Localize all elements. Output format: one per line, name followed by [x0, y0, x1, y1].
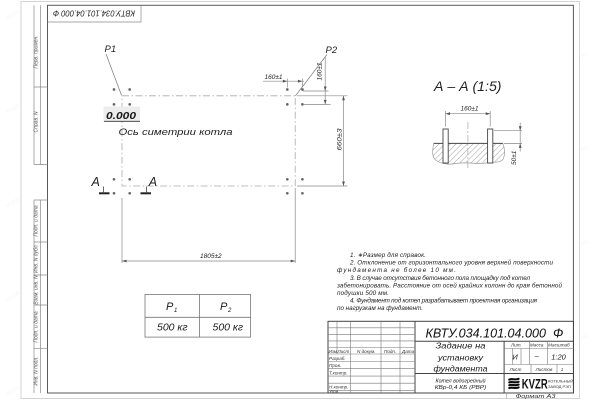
svg-text:50±1: 50±1: [511, 150, 518, 165]
svg-text:Лист: Лист: [337, 349, 350, 354]
svg-text:500 кг: 500 кг: [213, 322, 244, 334]
svg-text:забетонировать. Расстояние от: забетонировать. Расстояние от осей крайн…: [336, 281, 562, 289]
svg-text:4. Фундамент под котел разраба: 4. Фундамент под котел разрабатывает про…: [350, 297, 538, 305]
svg-text:Подп. и дата: Подп. и дата: [34, 205, 40, 237]
svg-text:Масштаб: Масштаб: [548, 342, 570, 347]
svg-text:1:20: 1:20: [551, 353, 566, 362]
svg-text:Т.контр.: Т.контр.: [329, 370, 348, 375]
svg-text:КВТУ.034.101.04.000 Ф: КВТУ.034.101.04.000 Ф: [52, 9, 135, 18]
svg-text:Взам. инв. N: Взам. инв. N: [34, 275, 40, 305]
svg-text:Масса: Масса: [530, 342, 544, 347]
svg-text:ЗАВОД РЭП: ЗАВОД РЭП: [548, 384, 571, 389]
svg-text:Лит.: Лит.: [510, 342, 522, 347]
svg-text:Лист: Лист: [509, 367, 522, 372]
svg-text:N докум.: N докум.: [357, 349, 376, 354]
svg-text:160±1: 160±1: [317, 62, 324, 80]
svg-text:1: 1: [561, 367, 564, 372]
svg-text:Ф: Ф: [553, 326, 563, 341]
svg-text:A: A: [91, 175, 100, 189]
svg-text:660±3: 660±3: [337, 128, 344, 150]
svg-text:КВр-0,4 КБ (РВР): КВр-0,4 КБ (РВР): [435, 385, 487, 391]
svg-text:Ось симетрии котла: Ось симетрии котла: [119, 127, 233, 138]
svg-text:Дата: Дата: [401, 349, 415, 354]
svg-text:Инв. N дубл.: Инв. N дубл.: [34, 244, 40, 273]
svg-text:3. В случае отсутствия бетонно: 3. В случае отсутствия бетонного пола пл…: [350, 274, 530, 282]
svg-text:KVZR: KVZR: [522, 376, 548, 392]
svg-text:2. Отклонение от горизонтально: 2. Отклонение от горизонтального уровня …: [349, 259, 553, 267]
svg-text:Формат А3: Формат А3: [516, 394, 556, 400]
svg-text:1805±2: 1805±2: [200, 253, 222, 260]
svg-text:Инв. N подл.: Инв. N подл.: [34, 356, 40, 385]
svg-text:фундамента не более 10 мм.: фундамента не более 10 мм.: [337, 266, 456, 274]
svg-text:по нагрузкам на фундамент.: по нагрузкам на фундамент.: [337, 304, 423, 312]
svg-text:500 кг: 500 кг: [157, 322, 188, 334]
svg-text:Подп. и дата: Подп. и дата: [34, 311, 40, 343]
svg-text:P: P: [166, 301, 174, 313]
svg-text:Задание на: Задание на: [436, 341, 487, 350]
svg-text:фундамента: фундамента: [434, 365, 488, 374]
svg-text:2: 2: [227, 308, 232, 314]
svg-text:Подп.: Подп.: [384, 349, 396, 354]
svg-text:1: 1: [174, 308, 177, 314]
svg-text:КОТЕЛЬНЫЙ: КОТЕЛЬНЫЙ: [548, 379, 573, 384]
svg-text:А – А (1:5): А – А (1:5): [433, 78, 502, 94]
svg-text:Листов: Листов: [535, 367, 553, 372]
svg-text:Разраб.: Разраб.: [329, 356, 346, 361]
svg-text:Котел водогрейный: Котел водогрейный: [436, 377, 486, 384]
svg-text:0.000: 0.000: [106, 110, 136, 122]
svg-text:Утв.: Утв.: [329, 389, 339, 394]
svg-text:установку: установку: [437, 353, 484, 362]
svg-text:160±1: 160±1: [265, 74, 283, 81]
svg-text:160±1: 160±1: [461, 106, 479, 113]
svg-text:И: И: [512, 353, 518, 362]
svg-text:A: A: [148, 175, 157, 189]
svg-text:Пров.: Пров.: [329, 363, 341, 368]
svg-text:P2: P2: [326, 45, 338, 56]
svg-text:Перв. примен.: Перв. примен.: [34, 35, 40, 68]
svg-text:1. ∗Размер для справок.: 1. ∗Размер для справок.: [350, 251, 426, 259]
svg-text:–: –: [534, 352, 540, 361]
svg-text:P: P: [220, 301, 228, 313]
svg-text:КВТУ.034.101.04.000: КВТУ.034.101.04.000: [426, 326, 547, 341]
svg-text:Справ. N: Справ. N: [34, 111, 40, 132]
svg-text:подушки 500 мм.: подушки 500 мм.: [337, 289, 389, 297]
svg-text:P1: P1: [105, 44, 117, 55]
